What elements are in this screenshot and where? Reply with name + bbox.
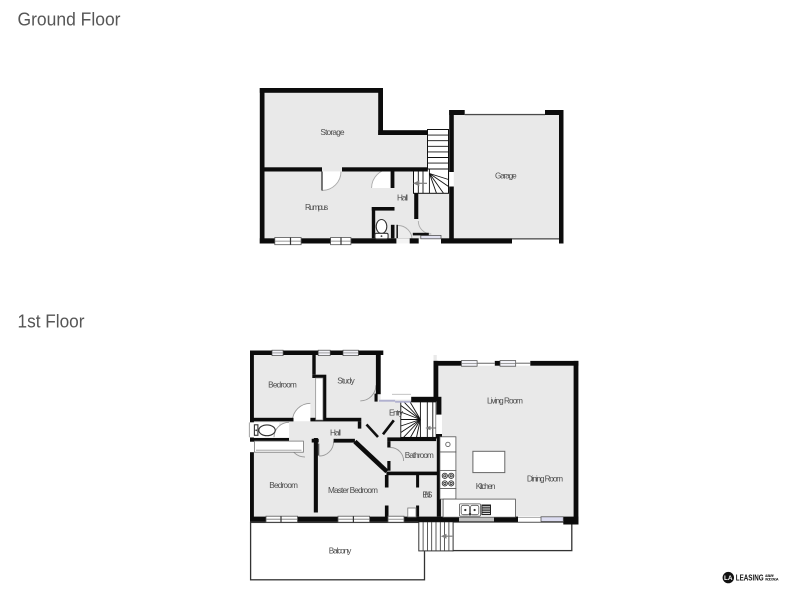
svg-text:Balcony: Balcony bbox=[329, 546, 353, 555]
svg-text:Bedroom: Bedroom bbox=[269, 481, 298, 490]
svg-text:LA: LA bbox=[724, 575, 733, 582]
svg-text:Hall: Hall bbox=[397, 193, 408, 202]
svg-text:Bathroom: Bathroom bbox=[405, 451, 434, 460]
svg-text:1st Floor: 1st Floor bbox=[18, 311, 85, 332]
svg-text:Study: Study bbox=[337, 376, 355, 385]
svg-text:ENS: ENS bbox=[422, 490, 433, 499]
svg-text:Bedroom: Bedroom bbox=[268, 380, 297, 389]
svg-text:Living Room: Living Room bbox=[487, 396, 523, 405]
svg-text:Storage: Storage bbox=[320, 128, 345, 137]
svg-text:Kitchen: Kitchen bbox=[476, 482, 496, 491]
svg-text:Entry: Entry bbox=[389, 408, 404, 417]
svg-text:Garage: Garage bbox=[495, 171, 517, 180]
svg-text:WODONGA: WODONGA bbox=[765, 578, 779, 582]
svg-text:Master Bedroom: Master Bedroom bbox=[328, 486, 378, 495]
svg-text:Dining Room: Dining Room bbox=[527, 474, 563, 483]
svg-text:LEASING: LEASING bbox=[736, 573, 764, 582]
svg-text:Rumpus: Rumpus bbox=[305, 203, 328, 212]
svg-text:Ground Floor: Ground Floor bbox=[18, 9, 121, 30]
svg-text:Hall: Hall bbox=[330, 428, 341, 437]
